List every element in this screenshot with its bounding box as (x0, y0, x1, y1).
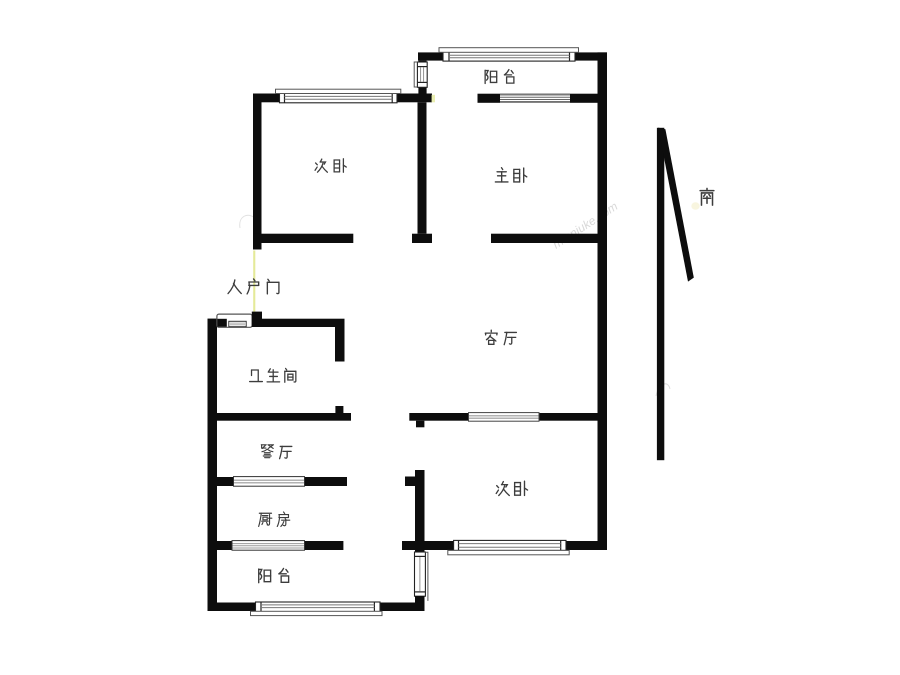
svg-text:m.anjuke.com: m.anjuke.com (550, 199, 620, 251)
